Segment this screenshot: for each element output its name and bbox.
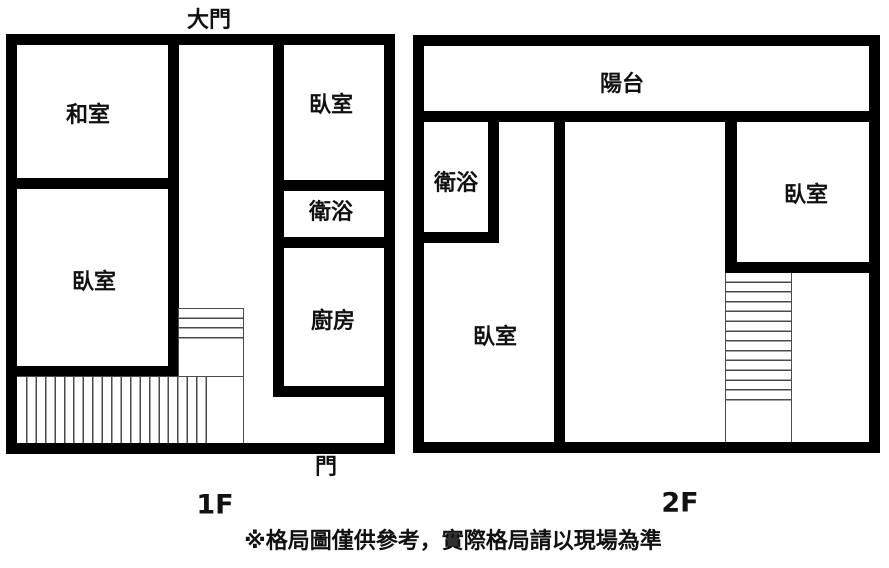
f1-wall-washitsu-bedroom — [6, 178, 179, 189]
f2-wall-central-right — [725, 111, 737, 262]
f2-room-label-bedroom-right: 臥室 — [784, 185, 828, 207]
f1-stairs-lower-treads — [18, 377, 208, 443]
floor-plan-image: 和室 臥室 臥室 衛浴 廚房 大門 門 1F 陽台 衛浴 臥室 臥室 2F ※格 — [0, 0, 889, 568]
f2-wall-central-left — [554, 111, 565, 442]
f1-back-door-label: 門 — [315, 457, 337, 479]
f2-wall-balcony-bottom — [413, 111, 880, 122]
f1-room-label-washitsu: 和室 — [66, 105, 110, 127]
f2-stairs — [725, 273, 792, 442]
f1-floor-label: 1F — [196, 492, 233, 519]
f1-wall-bathroom-bottom — [273, 237, 395, 248]
f1-wall-bedroomright-bottom — [273, 180, 395, 191]
f1-room-label-bedroom-left: 臥室 — [72, 272, 116, 294]
f1-room-label-bedroom-right: 臥室 — [309, 95, 353, 117]
f2-wall-bedroomright-bottom — [725, 262, 880, 273]
f2-wall-bathroom-right — [488, 122, 499, 243]
f2-room-label-balcony: 陽台 — [600, 74, 644, 96]
f1-corridor-wall-right — [273, 45, 284, 397]
f2-stairs-treads — [726, 273, 791, 406]
f1-room-label-kitchen: 廚房 — [311, 311, 355, 333]
f2-room-label-bathroom: 衛浴 — [434, 173, 478, 195]
f1-room-label-bathroom: 衛浴 — [309, 202, 353, 224]
f2-room-label-bedroom-left: 臥室 — [473, 327, 517, 349]
f1-stairs-upper — [178, 308, 244, 377]
f2-outer-wall — [413, 35, 880, 453]
f1-main-door-label: 大門 — [187, 10, 231, 32]
disclaimer-text: ※格局圖僅供參考，實際格局請以現場為準 — [244, 531, 661, 553]
f1-stairs-upper-treads — [179, 309, 243, 340]
f1-stairs-lower — [17, 376, 244, 443]
f1-wall-kitchen-bottom — [273, 386, 395, 397]
f2-wall-bathroom-bottom — [413, 232, 499, 243]
f2-floor-label: 2F — [661, 490, 698, 517]
